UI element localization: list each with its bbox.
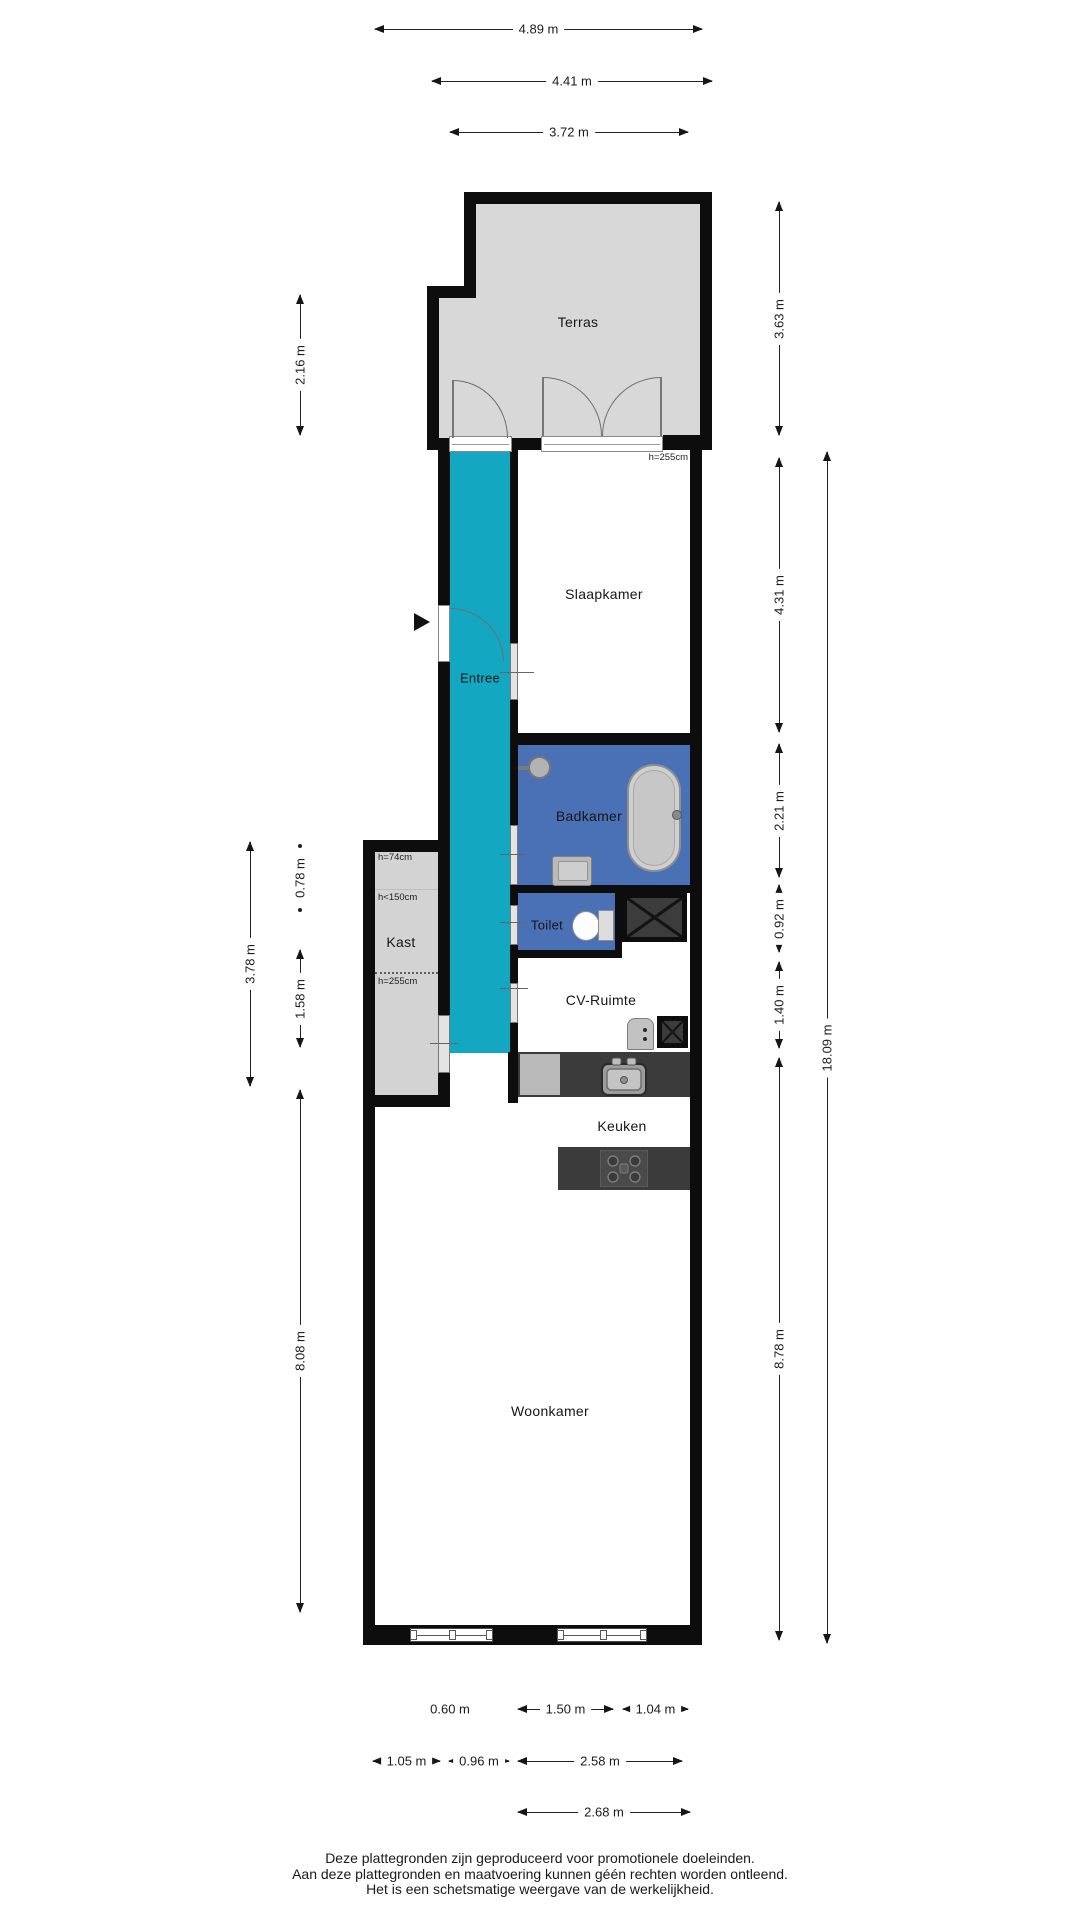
- french-door-left-leaf: [542, 377, 544, 436]
- shaft-x-icon: [627, 898, 682, 937]
- toilet-door-tick: [500, 922, 528, 923]
- terras-wall-left-lower: [427, 286, 439, 450]
- slaapkamer-wall-b: [510, 700, 518, 733]
- entrance-door: [438, 605, 450, 662]
- corridor-wall-seg2: [510, 893, 518, 905]
- footer-line-2: Aan deze plattegronden en maatvoering ku…: [0, 1867, 1080, 1883]
- kast-wall-left: [363, 840, 375, 1107]
- entree-corridor-floor: [450, 452, 510, 1053]
- left-wall-mid: [438, 662, 450, 840]
- kitchen-sink-icon: [600, 1056, 648, 1097]
- floorplan-page: h=74cm h<150cm h=255cm h=255cm Terras Sl…: [0, 0, 1080, 1920]
- shower-head-icon: [528, 756, 551, 779]
- footer-disclaimer: Deze plattegronden zijn geproduceerd voo…: [0, 1851, 1080, 1898]
- window-left: [410, 1628, 493, 1642]
- right-wall: [690, 435, 702, 1645]
- room-label-entree: Entree: [460, 671, 500, 686]
- room-label-keuken: Keuken: [597, 1118, 646, 1134]
- entrance-arrow-icon: [414, 613, 430, 631]
- kast-divider-solid: [375, 889, 438, 890]
- french-door-right-leaf: [660, 377, 662, 436]
- toilet-wall-bottom: [510, 950, 622, 958]
- terras-wall-top: [464, 192, 712, 204]
- kast-height-note-74: h=74cm: [378, 852, 412, 863]
- bathtub-tap-icon: [672, 810, 682, 820]
- cv-boiler-icon: [627, 1018, 654, 1050]
- cv-door-opening: [510, 983, 518, 1023]
- room-label-terras: Terras: [558, 314, 599, 330]
- room-label-kast: Kast: [386, 934, 415, 950]
- kast-wall-right-b: [438, 1073, 450, 1095]
- toilet-door-opening: [510, 905, 518, 945]
- badkamer-door-tick: [500, 854, 526, 855]
- kast-height-note-255: h=255cm: [378, 976, 417, 987]
- badkamer-door-opening: [510, 825, 518, 885]
- terras-entree-threshold: [449, 436, 512, 452]
- room-label-cv-ruimte: CV-Ruimte: [566, 992, 636, 1008]
- footer-line-3: Het is een schetsmatige weergave van de …: [0, 1882, 1080, 1898]
- left-wall-lower: [363, 1107, 375, 1645]
- shaft-x-icon: [662, 1021, 683, 1043]
- slaapkamer-door-tick: [500, 672, 534, 673]
- corridor-wall-seg3: [510, 945, 518, 983]
- kast-door-tick: [430, 1043, 458, 1044]
- window-right: [557, 1628, 647, 1642]
- left-wall-upper: [438, 444, 450, 605]
- toilet-tank-icon: [598, 910, 614, 941]
- shaft-lower: [657, 1016, 688, 1048]
- shaft-upper: [622, 893, 687, 942]
- dim-bottom-060: 0.60 m: [426, 1702, 474, 1717]
- room-label-toilet: Toilet: [531, 918, 563, 933]
- terras-floor-upper: [476, 204, 700, 300]
- badkamer-wall-top: [510, 733, 690, 745]
- terras-wall-bottom-seg2: [512, 438, 541, 450]
- terras-wall-right: [700, 192, 712, 450]
- room-label-badkamer: Badkamer: [556, 808, 622, 824]
- slaapkamer-wall-a: [510, 450, 518, 643]
- cooktop-icon: [600, 1150, 648, 1187]
- toilet-bowl-icon: [572, 911, 600, 941]
- kast-height-note-150: h<150cm: [378, 892, 417, 903]
- kast-wall-right-a: [438, 852, 450, 1015]
- kitchen-wall-stub: [508, 1052, 518, 1103]
- terras-door-leaf: [452, 380, 454, 438]
- terras-slaapkamer-threshold: [541, 436, 663, 452]
- terras-wall-left-upper: [464, 192, 476, 298]
- kitchen-appliance: [520, 1054, 560, 1095]
- badkamer-wall-bottom: [510, 885, 690, 893]
- cv-door-tick: [500, 988, 528, 989]
- footer-line-1: Deze plattegronden zijn geproduceerd voo…: [0, 1851, 1080, 1867]
- corridor-wall-seg1: [510, 745, 518, 825]
- slaapkamer-height-note: h=255cm: [649, 452, 688, 463]
- kast-wall-top: [363, 840, 450, 852]
- kast-door-opening: [438, 1015, 450, 1073]
- kast-wall-bottom: [363, 1095, 450, 1107]
- room-label-slaapkamer: Slaapkamer: [565, 586, 643, 602]
- toilet-wall-right: [615, 893, 622, 950]
- room-label-woonkamer: Woonkamer: [511, 1403, 589, 1419]
- kast-divider-dotted: [375, 972, 438, 974]
- bathroom-sink: [552, 856, 592, 886]
